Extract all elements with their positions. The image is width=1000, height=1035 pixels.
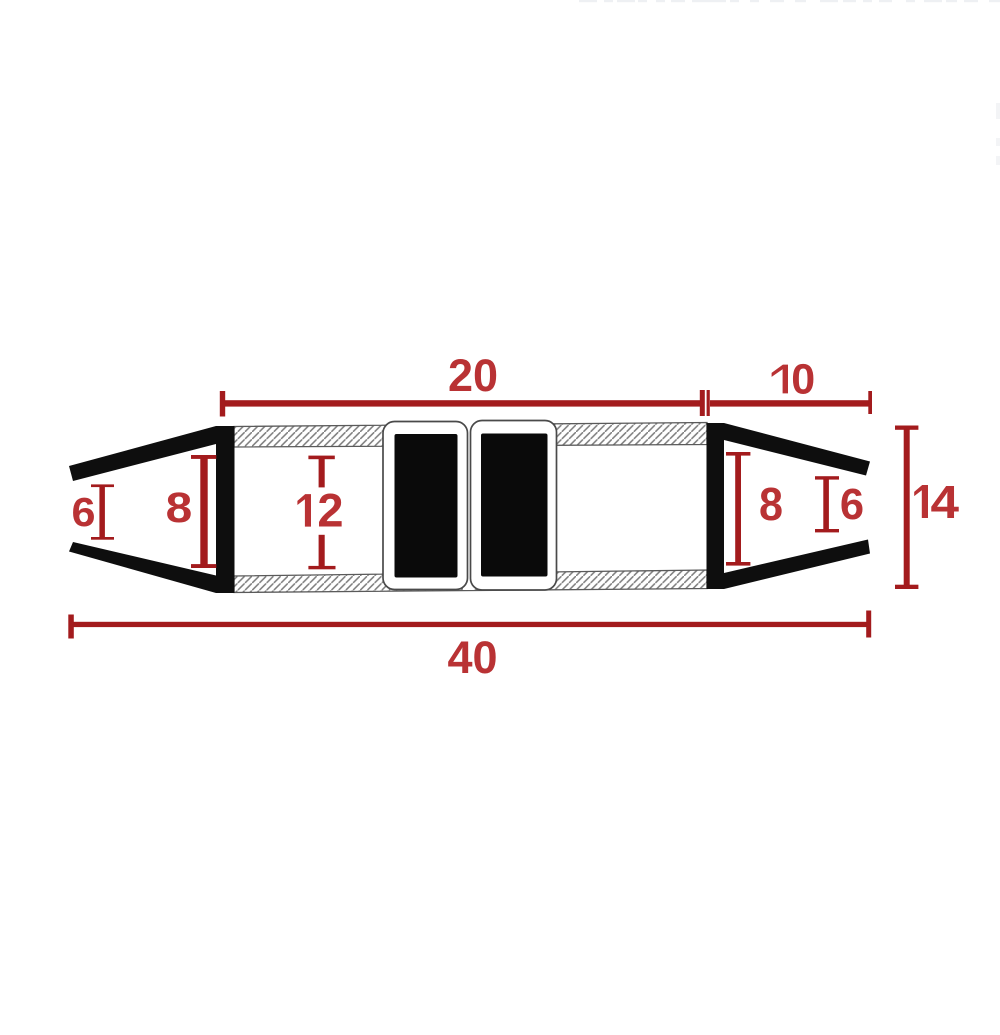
svg-text:40: 40 [447, 632, 497, 683]
svg-text:2: 2 [317, 484, 343, 537]
svg-text:20: 20 [448, 350, 498, 401]
svg-text:8: 8 [166, 485, 193, 532]
svg-text:0: 0 [791, 355, 815, 403]
svg-text:6: 6 [840, 481, 864, 529]
svg-text:4: 4 [931, 476, 960, 528]
svg-text:6: 6 [72, 489, 96, 535]
svg-text:8: 8 [759, 478, 783, 530]
